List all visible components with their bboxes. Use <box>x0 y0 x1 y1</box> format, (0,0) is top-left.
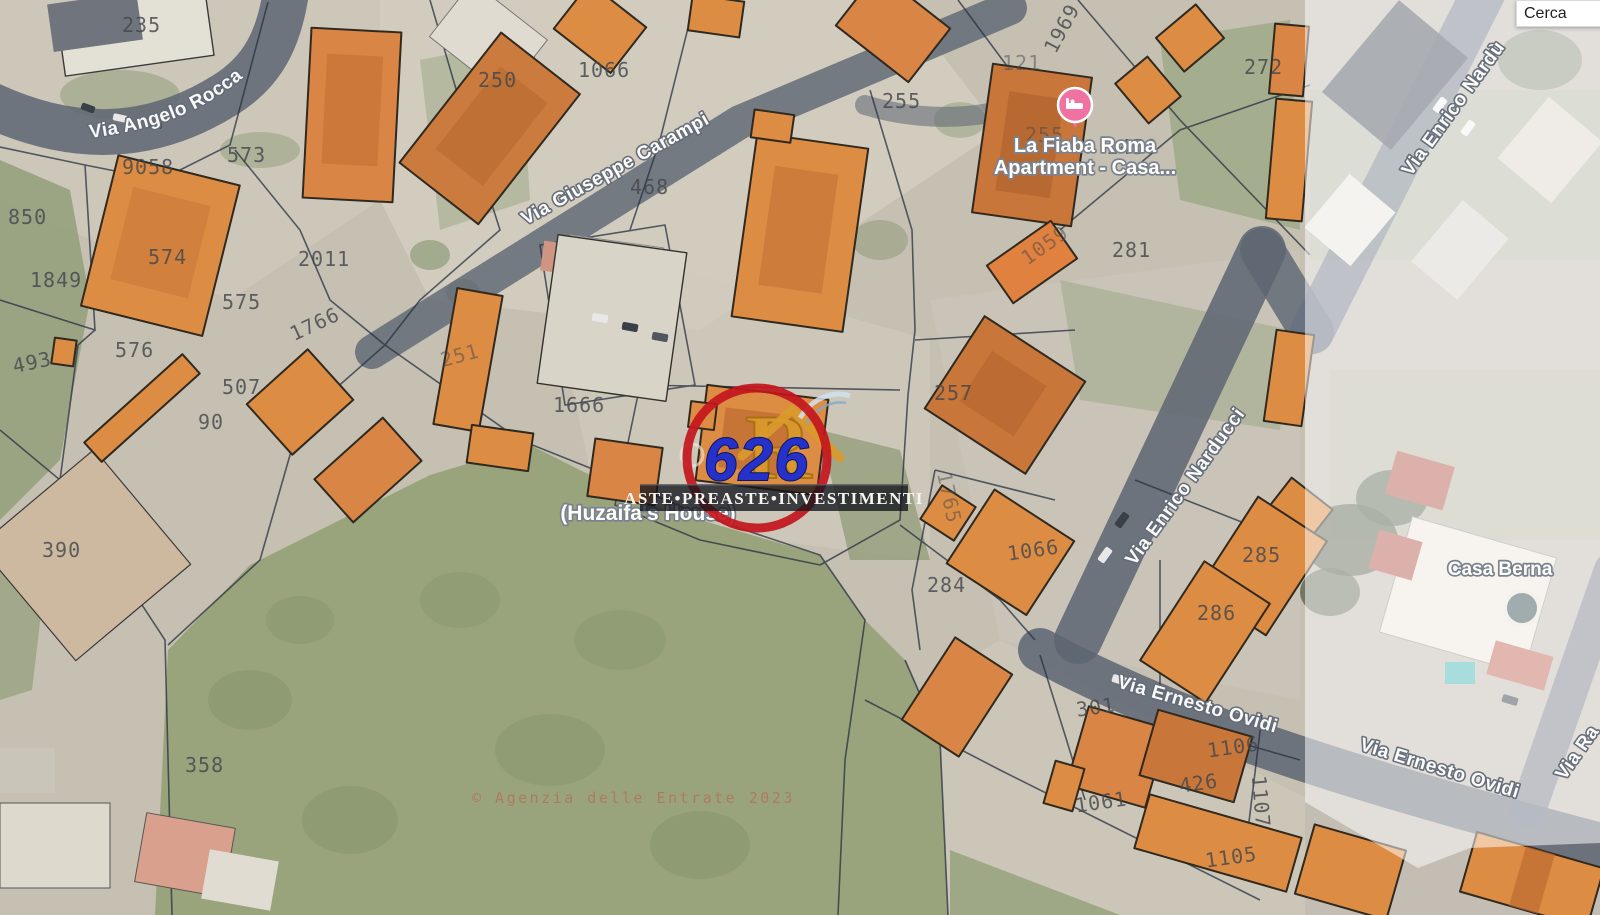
poi-label-casa-berna[interactable]: Casa Berna <box>1448 559 1553 580</box>
parcel-label: 281 <box>1112 238 1151 262</box>
parking-lot <box>537 235 687 402</box>
logo-banner-hairline <box>640 484 908 486</box>
parcel-label: 358 <box>185 753 224 777</box>
search-value: Cerca <box>1524 5 1567 23</box>
parcel-label: 272 <box>1244 55 1283 79</box>
parcel-label: 574 <box>148 245 187 269</box>
parcel-label: 850 <box>8 205 47 229</box>
parcel-label: 390 <box>42 538 81 562</box>
parcel-label: 285 <box>1242 543 1281 567</box>
parcel-label: 255 <box>882 89 921 113</box>
parcel-label: 507 <box>222 375 261 399</box>
parcel-label: 1066 <box>578 58 630 82</box>
building <box>51 338 76 367</box>
map-canvas[interactable]: Via Angelo Rocca Via Giuseppe Carampi Vi… <box>0 0 1600 915</box>
parcel-label: 575 <box>222 290 261 314</box>
parcel-label: 2011 <box>298 247 350 271</box>
search-input[interactable]: Cerca <box>1516 0 1600 27</box>
parcel-label: 286 <box>1197 601 1236 625</box>
highlight-wash-overlay <box>1305 0 1600 868</box>
satellite-cadastral-map: Via Angelo Rocca Via Giuseppe Carampi Vi… <box>0 0 1600 915</box>
parcel-label: 573 <box>227 143 266 167</box>
poi-label-la-fiaba-line2[interactable]: Apartment - Casa... <box>994 157 1176 179</box>
parcel-label: 284 <box>927 573 966 597</box>
logo-number: 626 <box>704 426 810 493</box>
building <box>0 748 55 793</box>
building <box>688 0 745 37</box>
parcel-label: 235 <box>122 13 161 37</box>
parcel-label: 90 <box>198 410 224 434</box>
parcel-label: 576 <box>115 338 154 362</box>
poi-label-la-fiaba-line1[interactable]: La Fiaba Roma <box>1014 135 1157 157</box>
parcel-label: 250 <box>478 68 517 92</box>
parcel-label: 9058 <box>122 155 174 179</box>
logo-brand-text: ASTE•PREASTE•INVESTIMENTI <box>624 489 924 508</box>
parcel-label: 257 <box>934 381 973 405</box>
parcel-label: 1107 <box>1247 774 1275 828</box>
attribution-watermark: © Agenzia delle Entrate 2023 <box>472 789 795 807</box>
building <box>467 425 534 471</box>
building <box>0 803 110 888</box>
parcel-label: 1666 <box>553 393 605 417</box>
parcel-label: 468 <box>630 175 669 199</box>
parcel-label: 1849 <box>30 268 82 292</box>
parcel-label: 121 <box>1002 51 1041 75</box>
